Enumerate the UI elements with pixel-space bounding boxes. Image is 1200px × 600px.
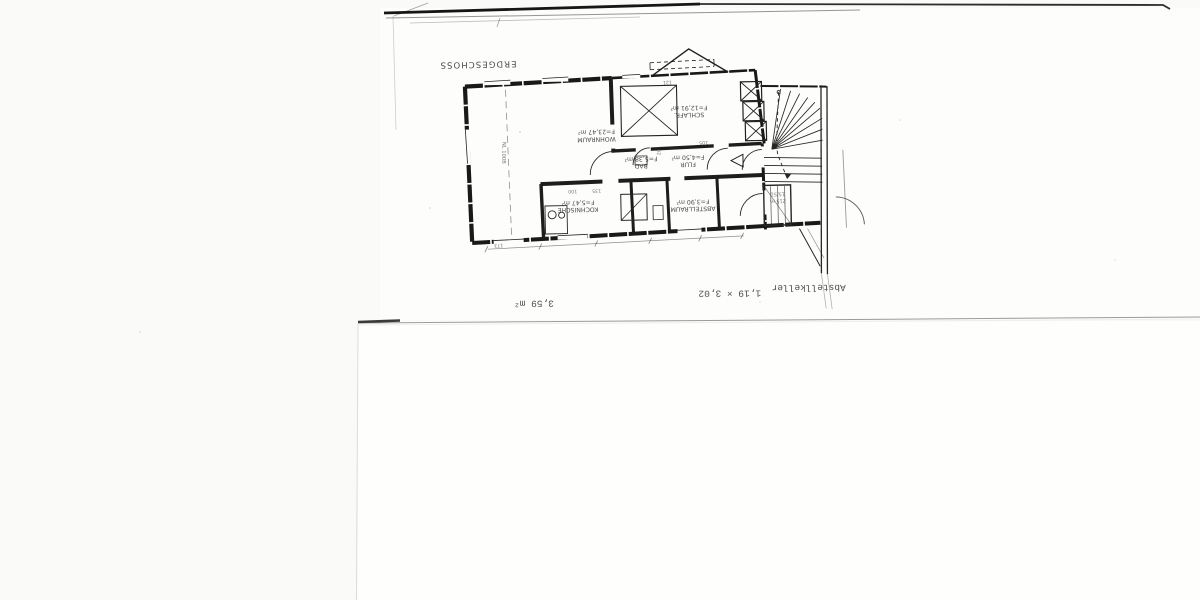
lower-sheet <box>357 321 1200 600</box>
duct-label: NL 100B <box>500 142 506 164</box>
dim-135: 135 <box>592 187 601 193</box>
room-abstellraum-name: ABSTELLRAUM <box>670 204 715 212</box>
stair-label-1: 15/51 <box>770 190 785 196</box>
room-bad-name: BAD <box>634 162 648 169</box>
room-flur-area: F=4,50 m² <box>671 153 705 161</box>
dim-105: 105 <box>699 139 708 145</box>
cellar-area-text: 3,59 m² <box>514 298 554 309</box>
scan-canvas: ERDGESCHOSS <box>0 0 1200 600</box>
upper-sheet <box>380 8 1200 320</box>
room-kochnische-name: KOCHNISCHE <box>557 205 598 213</box>
room-abstellraum-area: F=3,90 m² <box>676 198 710 206</box>
room-wohnraum-area: F=23,47 m² <box>577 128 615 136</box>
dim-201: 201 <box>656 146 663 155</box>
plan-title: ERDGESCHOSS <box>439 58 516 70</box>
room-wohnraum-name: WOHNRAUM <box>577 135 616 143</box>
cellar-dims-text: 1,19 × 3,02 <box>698 288 761 299</box>
room-bad-area: F=5,38 m² <box>624 155 658 163</box>
room-flur-name: FLUR <box>680 160 696 167</box>
dim-121: 121 <box>663 79 672 85</box>
room-kochnische-area: F=5,47 m² <box>561 198 595 206</box>
dim-173: 173 <box>494 242 503 248</box>
stair-label-2: 215 m <box>770 197 786 203</box>
room-schlafraum-name: SCHLAFR. <box>674 111 705 119</box>
cellar-label-text: Abstellkeller <box>772 282 846 293</box>
room-schlafraum-area: F=12,91 m² <box>670 104 708 112</box>
scanned-page: ERDGESCHOSS <box>0 0 1200 600</box>
dim-100: 100 <box>568 188 577 194</box>
